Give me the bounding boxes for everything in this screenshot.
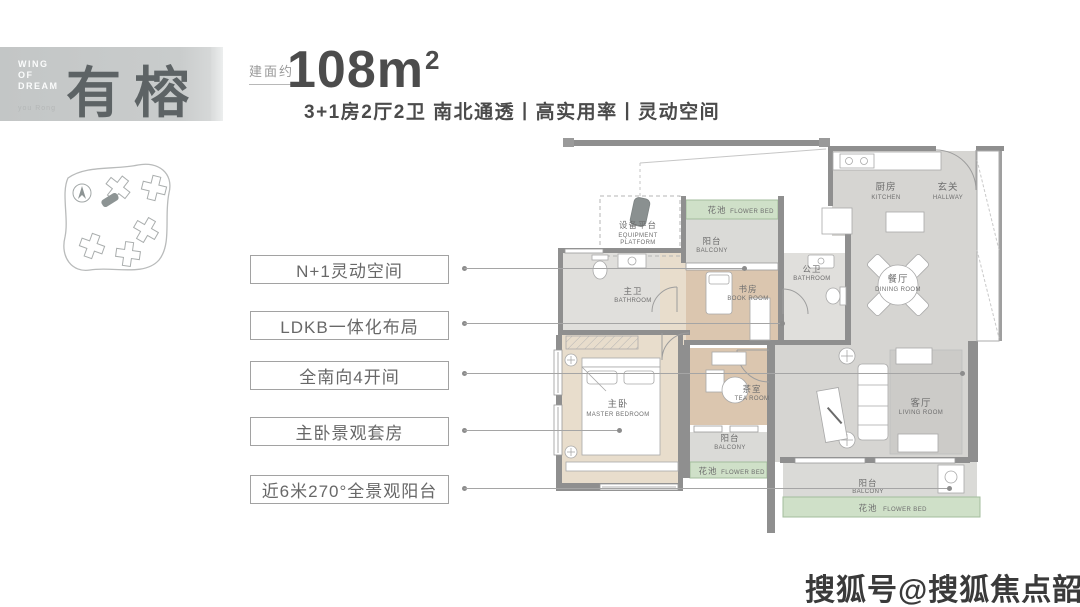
brand-line1: WING: [18, 59, 59, 70]
room-label-flowerbed1-en: FLOWER BED: [730, 209, 774, 215]
leader-dot: [780, 321, 785, 326]
room-label-kitchen-en: KITCHEN: [871, 195, 900, 201]
room-label-equipment-en2: PLATFORM: [620, 240, 655, 246]
room-label-hallway-en: HALLWAY: [933, 195, 963, 201]
feature-box-5: 近6米270°全景观阳台: [250, 475, 449, 504]
leader-line-4: [464, 430, 620, 431]
area-number: 108m: [287, 41, 424, 99]
room-label-book-cn: 书房: [738, 284, 757, 294]
leader-line-1: [464, 268, 745, 269]
room-label-publicbath-en: BATHROOM: [793, 276, 830, 282]
feature-box-4: 主卧景观套房: [250, 417, 449, 446]
room-label-balcony1-en: BALCONY: [696, 248, 727, 254]
room-label-flowerbed2-en: FLOWER BED: [721, 470, 765, 476]
feature-box-3: 全南向4开间: [250, 361, 449, 390]
page: WING OF DREAM you Rong 有榕 建面约 108m2 3+1房…: [0, 0, 1080, 607]
room-label-balcony3-cn: 阳台: [858, 478, 877, 488]
room-label-equipment-en1: EQUIPMENT: [618, 233, 657, 239]
room-label-balcony3-en: BALCONY: [852, 489, 883, 495]
room-label-flowerbed2-cn: 花池: [698, 466, 717, 476]
leader-line-2: [464, 323, 783, 324]
leader-dot: [742, 266, 747, 271]
window-shaft: [977, 151, 999, 341]
room-label-masterbed-cn: 主卧: [607, 398, 628, 410]
room-label-book-en: BOOK ROOM: [727, 296, 768, 302]
room-label-living-cn: 客厅: [910, 397, 931, 409]
room-label-tea-cn: 茶室: [742, 384, 761, 394]
watermark: 搜狐号@搜狐焦点韶关站: [805, 565, 1080, 607]
brand-line2: OF: [18, 70, 59, 81]
leader-dot: [960, 371, 965, 376]
room-label-flowerbed1-cn: 花池: [707, 205, 726, 215]
leader-line-3: [464, 373, 963, 374]
room-label-balcony2-cn: 阳台: [720, 433, 739, 443]
site-buildings: [77, 171, 169, 267]
room-label-dining-cn: 餐厅: [887, 273, 908, 285]
brand-banner: WING OF DREAM you Rong 有榕: [0, 47, 211, 121]
room-label-flowerbed3-cn: 花池: [858, 503, 877, 513]
brand-name: 有榕: [66, 48, 202, 128]
leader-dot: [947, 486, 952, 491]
area-value: 108m2: [287, 40, 440, 100]
room-label-balcony2-en: BALCONY: [714, 445, 745, 451]
room-label-masterbath-cn: 主卫: [623, 286, 642, 296]
room-label-kitchen-cn: 厨房: [875, 181, 896, 193]
leader-line-5: [464, 488, 950, 489]
feature-box-1: N+1灵动空间: [250, 255, 449, 284]
room-label-masterbath-en: BATHROOM: [614, 298, 651, 304]
feature-box-2: LDKB一体化布局: [250, 311, 449, 340]
room-label-dining-en: DINING ROOM: [875, 287, 921, 293]
site-sketch: [52, 158, 182, 280]
leader-dot: [617, 428, 622, 433]
room-label-living-en: LIVING ROOM: [899, 410, 943, 416]
tagline: 3+1房2厅2卫 南北通透丨高实用率丨灵动空间: [304, 97, 720, 124]
room-label-masterbed-en: MASTER BEDROOM: [586, 412, 649, 418]
brand-english: WING OF DREAM: [18, 59, 59, 92]
room-label-hallway-cn: 玄关: [937, 181, 958, 193]
room-label-equipment-cn: 设备平台: [619, 220, 657, 230]
area-superscript: 2: [425, 45, 440, 75]
room-label-flowerbed3-en: FLOWER BED: [883, 507, 927, 513]
room-label-publicbath-cn: 公卫: [802, 264, 821, 274]
compass-icon: [73, 184, 91, 202]
room-label-tea-en: TEA ROOM: [735, 396, 770, 402]
room-label-balcony1-cn: 阳台: [702, 236, 721, 246]
floor-plan: 厨房 KITCHEN 玄关 HALLWAY 花池 FLOWER BED 设备平台…: [548, 128, 1012, 534]
brand-line3: DREAM: [18, 81, 59, 92]
brand-pinyin: you Rong: [18, 105, 56, 112]
